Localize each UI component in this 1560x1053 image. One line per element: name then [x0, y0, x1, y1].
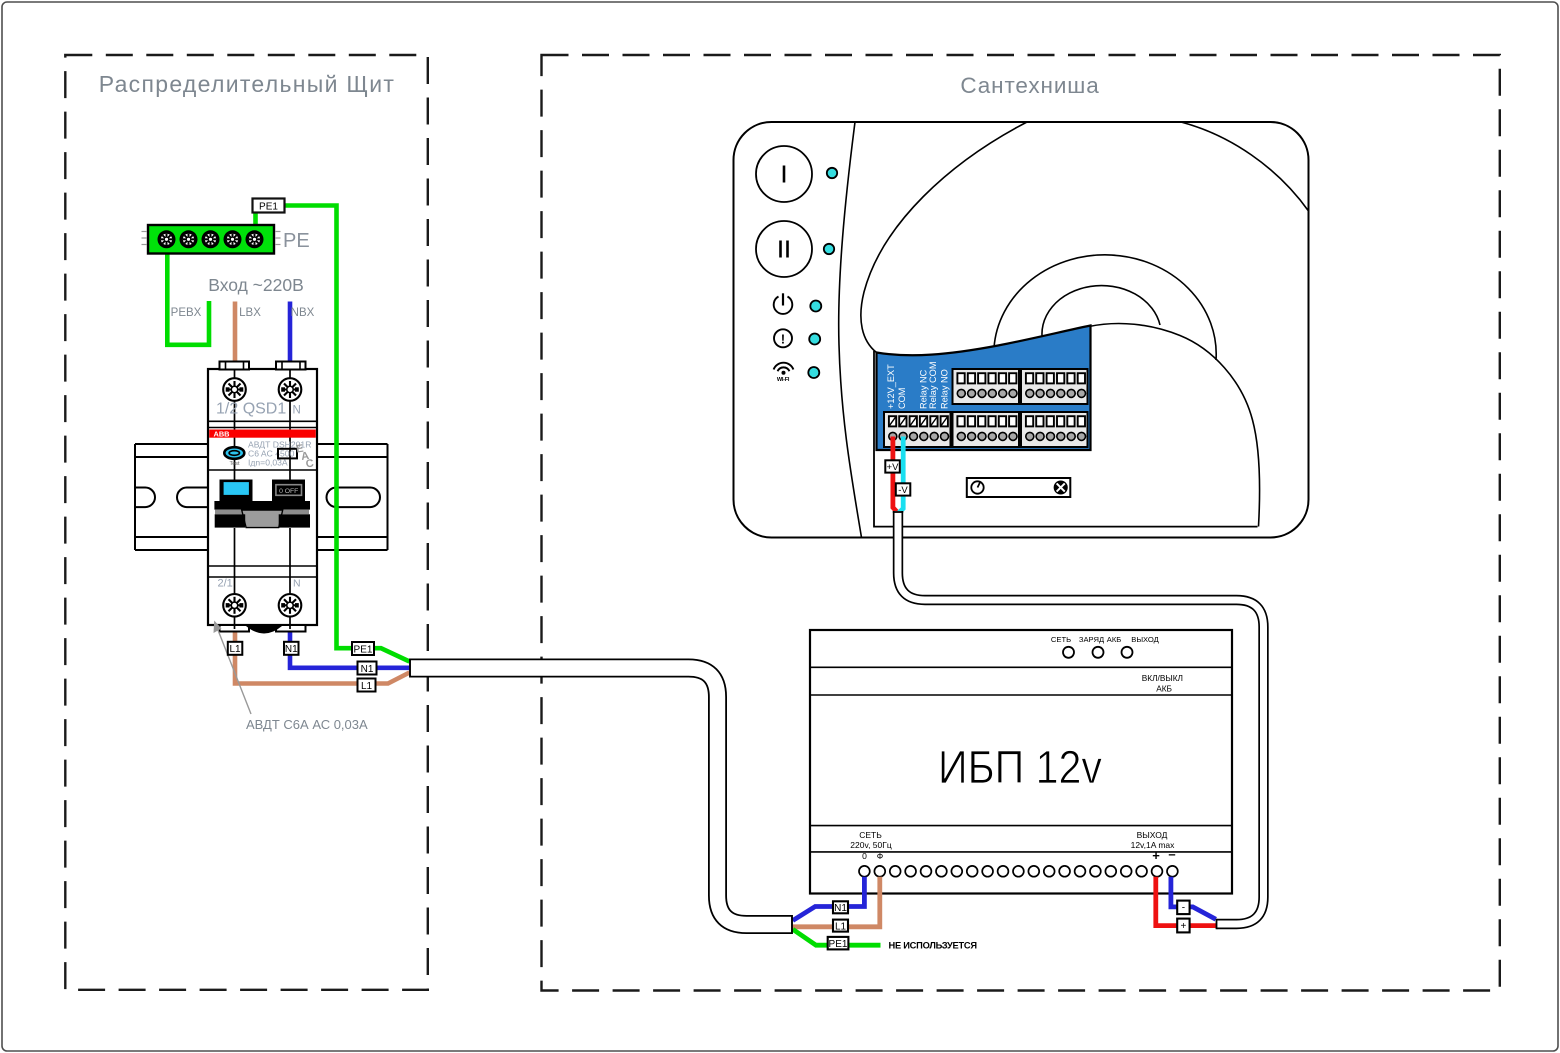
svg-text:Test: Test: [229, 461, 240, 467]
svg-text:WI-FI: WI-FI: [777, 377, 790, 383]
svg-text:Ф: Ф: [877, 851, 883, 861]
svg-text:ИБП 12v: ИБП 12v: [938, 741, 1102, 793]
svg-text:COM: COM: [897, 388, 907, 409]
svg-text:-V: -V: [898, 485, 908, 496]
svg-text:!: !: [781, 333, 785, 347]
svg-text:Relay NC: Relay NC: [919, 369, 929, 409]
svg-text:N1: N1: [834, 903, 847, 914]
svg-text:ABB: ABB: [214, 430, 230, 439]
svg-text:ВКЛ/ВЫКЛ: ВКЛ/ВЫКЛ: [1142, 673, 1183, 683]
svg-text:+12V_EXT: +12V_EXT: [886, 364, 896, 409]
svg-text:L1: L1: [835, 921, 847, 932]
svg-text:N1: N1: [285, 644, 298, 655]
svg-text:Распределительный Щит: Распределительный Щит: [99, 71, 396, 97]
svg-text:N1: N1: [361, 664, 374, 675]
svg-text:NBX: NBX: [291, 307, 315, 319]
svg-text:ВЫХОД: ВЫХОД: [1137, 830, 1168, 840]
svg-text:СЕТЬ: СЕТЬ: [1051, 635, 1071, 644]
svg-text:N: N: [293, 405, 301, 417]
svg-text:-: -: [1182, 903, 1185, 914]
svg-text:220v, 50Гц: 220v, 50Гц: [850, 840, 892, 850]
svg-text:LBX: LBX: [239, 307, 261, 319]
svg-text:АВДТ С6А АС 0,03А: АВДТ С6А АС 0,03А: [246, 717, 368, 732]
svg-text:Вход ~220В: Вход ~220В: [208, 275, 304, 295]
svg-text:+V: +V: [887, 462, 900, 473]
svg-text:АКБ: АКБ: [1156, 684, 1172, 694]
svg-text:–: –: [1168, 847, 1175, 862]
svg-text:АКБ: АКБ: [1107, 635, 1121, 644]
svg-text:ВЫХОД: ВЫХОД: [1131, 635, 1158, 644]
svg-text:0 OFF: 0 OFF: [279, 488, 298, 495]
svg-text:0: 0: [862, 851, 867, 861]
svg-text:2/1: 2/1: [218, 578, 233, 590]
svg-text:PEBX: PEBX: [171, 307, 202, 319]
svg-text:Relay COM: Relay COM: [928, 362, 938, 409]
svg-text:PE: PE: [283, 230, 310, 252]
svg-text:L1: L1: [361, 681, 373, 692]
svg-text:СЕТЬ: СЕТЬ: [859, 830, 882, 840]
svg-text:НЕ ИСПОЛЬЗУЕТСЯ: НЕ ИСПОЛЬЗУЕТСЯ: [889, 941, 978, 951]
svg-text:L1: L1: [229, 644, 241, 655]
svg-text:+: +: [1152, 848, 1160, 863]
svg-text:PE1: PE1: [259, 202, 278, 213]
svg-text:Relay NO: Relay NO: [940, 369, 950, 409]
svg-text:PE1: PE1: [829, 939, 848, 950]
svg-text:+: +: [1180, 921, 1186, 932]
svg-text:1/2 QSD1: 1/2 QSD1: [216, 401, 286, 418]
svg-text:PE1: PE1: [354, 645, 373, 656]
svg-text:Сантехниша: Сантехниша: [960, 73, 1099, 98]
svg-text:ЗАРЯД: ЗАРЯД: [1079, 635, 1104, 644]
svg-text:N: N: [293, 577, 301, 589]
